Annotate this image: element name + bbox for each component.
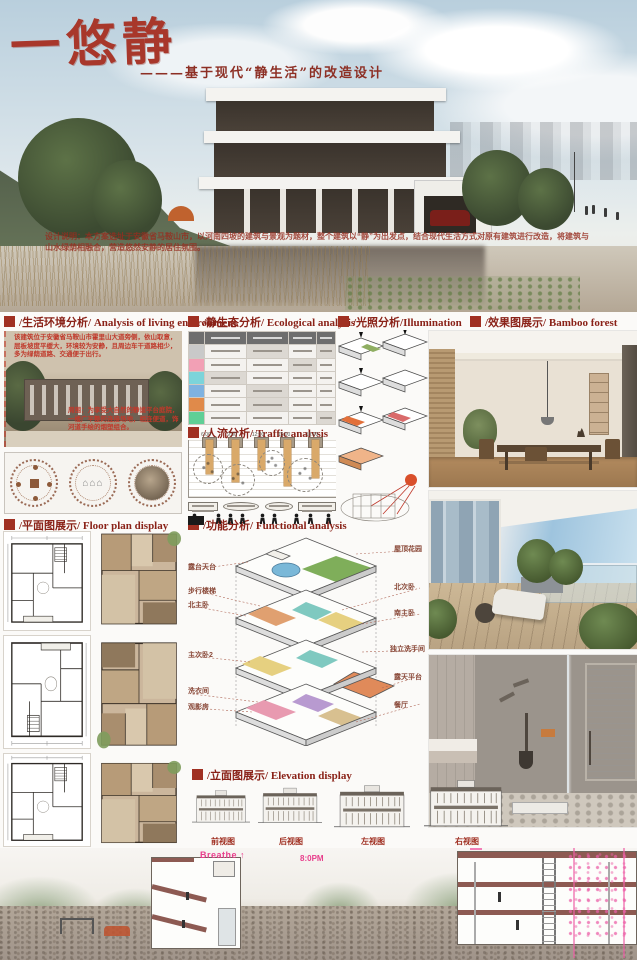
section-header-illumination: /光照分析/Illumination <box>338 315 462 328</box>
dining-table <box>497 445 601 452</box>
concept-photo <box>135 466 169 500</box>
elevation-label: 右视图 <box>442 836 492 847</box>
concept-diagrams: ⌂⌂⌂ <box>4 452 182 514</box>
site-photo-caption: 周围：为享受大自然的静谧平台庭院，一楼广平整的连接场地，相连便道，饰河道手绘的烟… <box>68 407 180 433</box>
section-house-left <box>152 858 240 948</box>
rendered-plan-2 <box>96 636 182 752</box>
streetlamp <box>574 152 575 212</box>
section-marker-icon <box>4 316 15 327</box>
poster-subtitle: ———基于现代“静生活”的改造设计 <box>140 62 384 81</box>
section-marker-icon <box>4 519 15 530</box>
room-label: 北主卧 <box>188 600 209 610</box>
room-label: 观影房 <box>188 702 209 712</box>
time-annotation: 8:0PM <box>300 854 324 863</box>
room-label: 步行楼梯 <box>188 586 216 596</box>
section-marker-icon <box>338 316 349 327</box>
design-note: 设计说明：本方案选址于安徽省马鞍山市，以河南四坡的建筑与景观为题材，整个建筑以“… <box>45 231 590 253</box>
room-label: 南主卧 <box>394 608 415 618</box>
rendered-plan-1 <box>96 528 182 630</box>
functional-axon <box>186 532 426 746</box>
room-label: 屋顶花园 <box>394 544 422 554</box>
design-note-label: 设计说明： <box>45 232 85 241</box>
elevation-label: 前视图 <box>198 836 248 847</box>
elevation-label: 左视图 <box>348 836 398 847</box>
elevation-rear <box>258 780 322 832</box>
section-marker-icon <box>188 316 199 327</box>
section-marker-icon <box>192 769 203 780</box>
room-label: 洗衣间 <box>188 686 209 696</box>
concept-circle-3 <box>128 459 176 507</box>
shower-fixture <box>525 713 528 755</box>
rendered-plan-3 <box>96 758 182 848</box>
flow-diagram <box>188 500 336 512</box>
elevation-right <box>424 776 508 832</box>
hero-render: 一悠静 ———基于现代“静生活”的改造设计 设计说明：本方案选址于安徽省马鞍山市… <box>0 0 637 312</box>
line-plan-1 <box>4 532 90 630</box>
illumination-diagrams <box>337 330 429 522</box>
bathroom-window <box>585 663 637 781</box>
house-icons: ⌂⌂⌂ <box>82 478 103 489</box>
room-label: 北次卧 <box>394 582 415 592</box>
arrow-icon: ↑ <box>240 850 245 860</box>
room-label: 餐厅 <box>394 700 408 710</box>
concept-circle-1 <box>10 459 58 507</box>
breathe-annotation: Breathe ↑ <box>200 850 245 860</box>
car <box>430 210 470 226</box>
elevation-front <box>192 782 250 832</box>
people-silhouettes <box>188 513 336 526</box>
pendant-light <box>541 417 554 425</box>
petal-scatter <box>566 848 630 938</box>
section-header-ecological: /静生态分析/ Ecological analysis <box>188 315 355 328</box>
dining-room-render <box>429 331 637 487</box>
section-marker-icon <box>470 316 481 327</box>
balcony-render <box>429 491 637 649</box>
traffic-chart <box>188 440 336 498</box>
concept-circle-2: ⌂⌂⌂ <box>69 459 117 507</box>
line-plan-3 <box>4 754 90 846</box>
section-header-effect: /效果图展示/ Bamboo forest <box>470 315 617 328</box>
deer-figurine <box>577 427 585 437</box>
room-label: 独立洗手间 <box>390 644 425 654</box>
site-section-drawing: Breathe ↑ 8:0PM <box>0 848 637 960</box>
elevation-left <box>334 782 410 832</box>
shower-tray <box>513 803 567 813</box>
room-label: 主次卧2 <box>188 650 213 660</box>
presentation-poster: 一悠静 ———基于现代“静生活”的改造设计 设计说明：本方案选址于安徽省马鞍山市… <box>0 0 637 960</box>
shower-glass <box>567 655 569 805</box>
vanity-counter <box>429 739 477 751</box>
line-plan-2 <box>4 636 90 748</box>
room-label: 露台天台 <box>188 562 216 572</box>
design-note-text: 本方案选址于安徽省马鞍山市，以河南四坡的建筑与景观为题材，整个建筑以“静”为出发… <box>45 232 589 252</box>
water-plants <box>345 276 580 310</box>
elevation-label: 后视图 <box>266 836 316 847</box>
site-photo-annotation: 该建筑位于安徽省马鞍山市霍里山大道旁侧，依山取意，层板坡度平缓大，环境较为安静，… <box>14 334 179 360</box>
ecological-table <box>188 331 336 425</box>
site-photo: 该建筑位于安徽省马鞍山市霍里山大道旁侧，依山取意，层板坡度平缓大，环境较为安静，… <box>4 331 182 447</box>
room-label: 露天平台 <box>394 672 422 682</box>
